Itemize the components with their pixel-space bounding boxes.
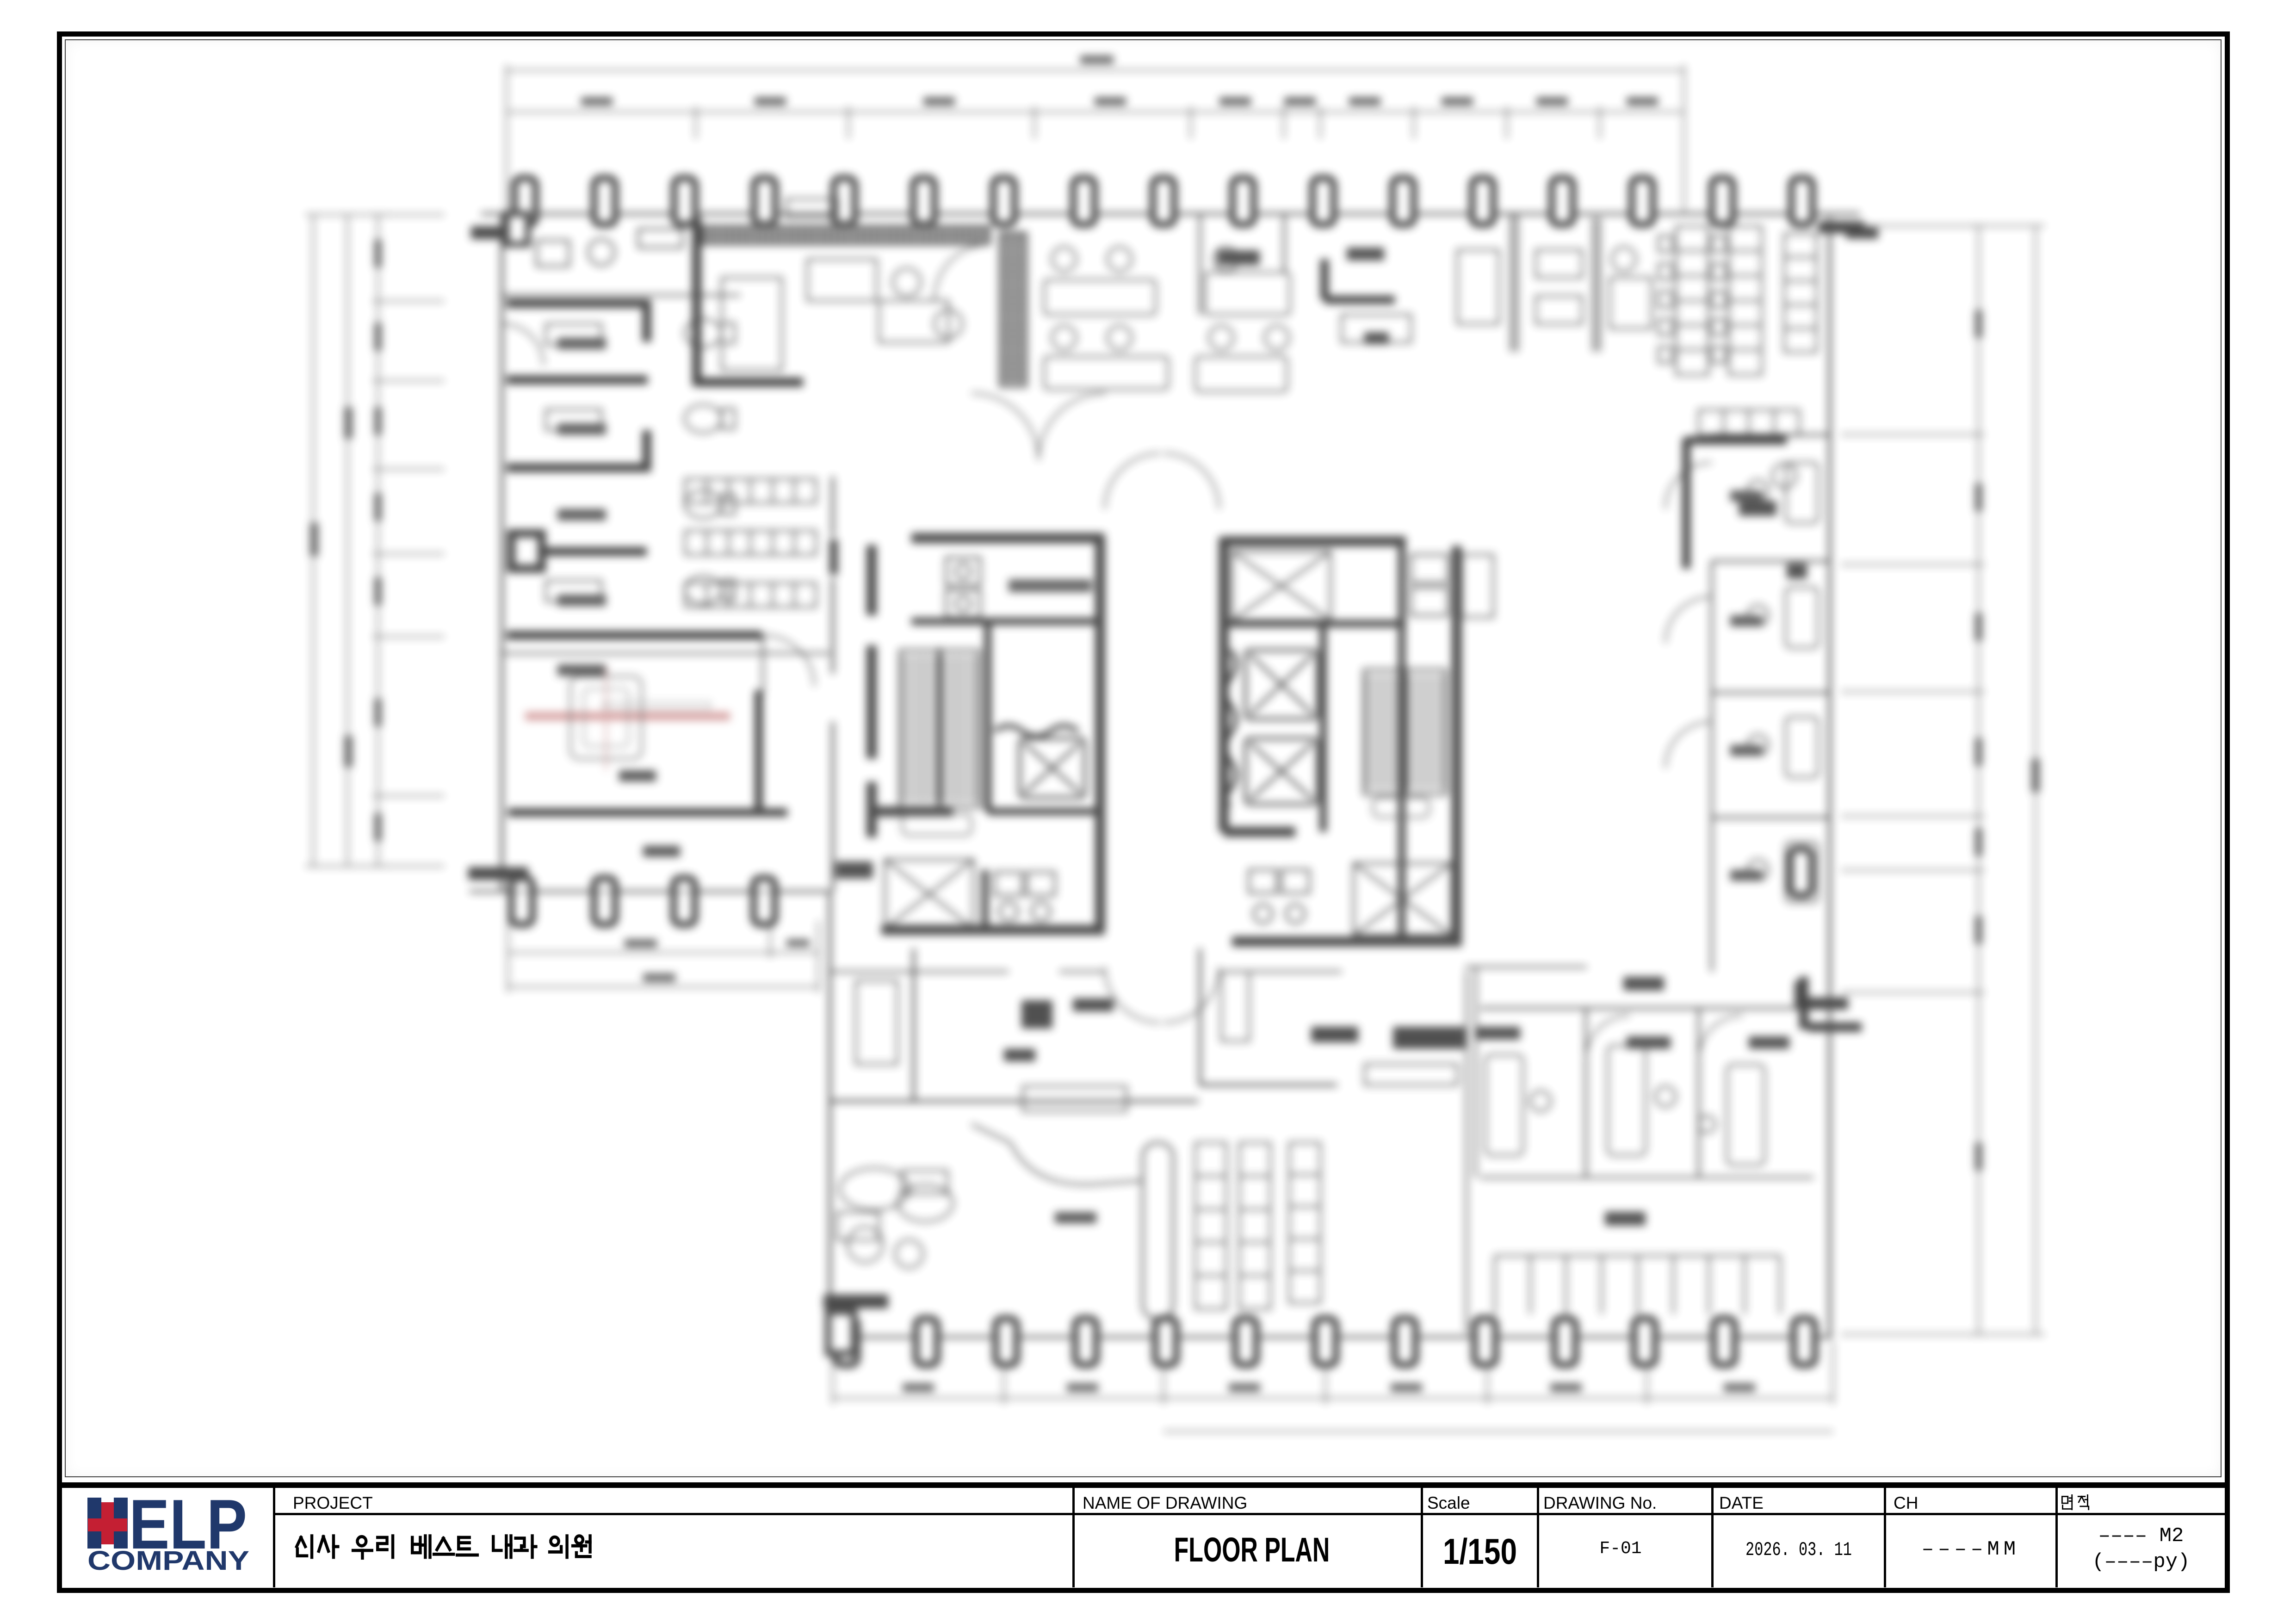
svg-text:ELP: ELP <box>129 1495 247 1555</box>
svg-text:COMPANY: COMPANY <box>87 1549 249 1573</box>
